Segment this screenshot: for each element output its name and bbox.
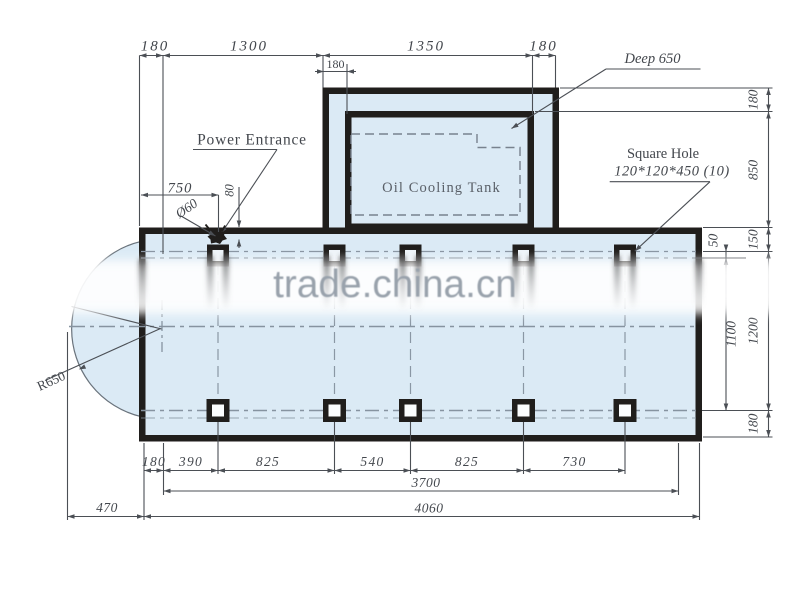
svg-text:540: 540 bbox=[360, 454, 384, 469]
svg-text:4060: 4060 bbox=[415, 501, 444, 516]
svg-text:825: 825 bbox=[256, 454, 280, 469]
svg-text:1350: 1350 bbox=[407, 39, 445, 55]
svg-text:180: 180 bbox=[746, 89, 761, 110]
svg-text:180: 180 bbox=[529, 39, 558, 55]
svg-text:850: 850 bbox=[746, 160, 761, 181]
svg-text:180: 180 bbox=[746, 413, 761, 434]
svg-text:1200: 1200 bbox=[746, 317, 761, 344]
svg-text:180: 180 bbox=[327, 57, 345, 71]
svg-text:150: 150 bbox=[746, 229, 761, 250]
svg-text:3700: 3700 bbox=[411, 475, 441, 490]
svg-text:730: 730 bbox=[562, 454, 586, 469]
svg-text:Power Entrance: Power Entrance bbox=[197, 132, 307, 149]
svg-text:80: 80 bbox=[223, 184, 237, 197]
svg-text:1100: 1100 bbox=[724, 321, 739, 347]
svg-text:Deep 650: Deep 650 bbox=[624, 51, 682, 67]
svg-text:470: 470 bbox=[96, 500, 118, 515]
svg-text:Square Hole: Square Hole bbox=[627, 146, 699, 162]
svg-text:50: 50 bbox=[706, 234, 721, 248]
svg-text:180: 180 bbox=[142, 454, 166, 469]
svg-text:trade.china.cn: trade.china.cn bbox=[273, 263, 517, 306]
svg-text:120*120*450 (10): 120*120*450 (10) bbox=[614, 164, 730, 180]
svg-text:Oil Cooling Tank: Oil Cooling Tank bbox=[382, 180, 501, 196]
svg-text:825: 825 bbox=[455, 454, 479, 469]
svg-text:750: 750 bbox=[168, 181, 193, 197]
svg-text:180: 180 bbox=[141, 39, 170, 55]
svg-text:1300: 1300 bbox=[230, 39, 268, 55]
svg-text:390: 390 bbox=[178, 454, 203, 469]
